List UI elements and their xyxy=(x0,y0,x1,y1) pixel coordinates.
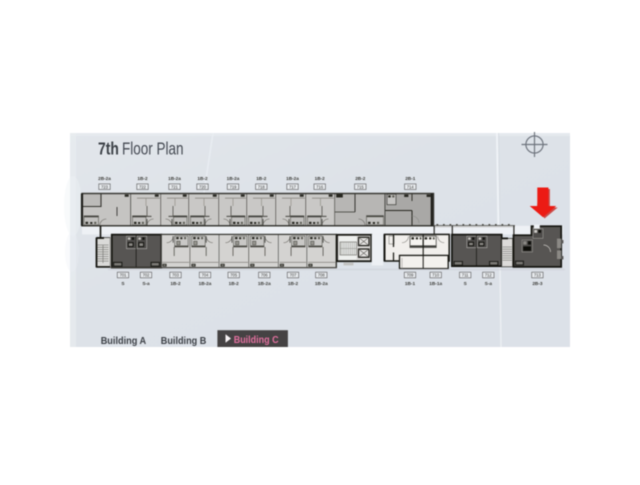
svg-text:723: 723 xyxy=(101,184,109,189)
svg-text:S: S xyxy=(464,281,467,286)
svg-text:722: 722 xyxy=(139,184,147,189)
svg-text:709: 709 xyxy=(407,273,415,278)
svg-text:2B-3: 2B-3 xyxy=(532,281,543,286)
svg-text:721: 721 xyxy=(171,184,179,189)
svg-text:712: 712 xyxy=(485,273,493,278)
svg-text:1B-2: 1B-2 xyxy=(315,176,326,181)
svg-text:716: 716 xyxy=(316,184,324,189)
svg-text:S-a: S-a xyxy=(485,281,493,286)
svg-text:2B-2a: 2B-2a xyxy=(98,176,111,181)
svg-text:1B-2a: 1B-2a xyxy=(168,176,181,181)
svg-text:1B-2: 1B-2 xyxy=(137,176,148,181)
svg-text:S-a: S-a xyxy=(142,281,150,286)
svg-text:2B-2: 2B-2 xyxy=(355,176,366,181)
svg-text:701: 701 xyxy=(120,273,128,278)
svg-text:720: 720 xyxy=(199,184,207,189)
svg-text:718: 718 xyxy=(258,184,266,189)
svg-text:1B-2a: 1B-2a xyxy=(227,176,240,181)
svg-text:706: 706 xyxy=(261,273,269,278)
svg-text:1B-2a: 1B-2a xyxy=(315,281,328,286)
svg-text:1B-1: 1B-1 xyxy=(405,281,416,286)
svg-text:Building B: Building B xyxy=(161,335,207,347)
svg-text:702: 702 xyxy=(143,273,151,278)
svg-text:7th: 7th xyxy=(98,138,119,158)
svg-text:Building C: Building C xyxy=(234,334,279,346)
svg-text:1B-2: 1B-2 xyxy=(170,281,181,286)
svg-text:711: 711 xyxy=(462,273,469,278)
svg-text:1B-1a: 1B-1a xyxy=(429,281,442,286)
svg-text:1B-2: 1B-2 xyxy=(197,176,208,181)
svg-text:703: 703 xyxy=(172,273,180,278)
svg-text:707: 707 xyxy=(290,273,298,278)
svg-text:1B-2a: 1B-2a xyxy=(258,281,271,286)
svg-text:1B-2: 1B-2 xyxy=(229,281,240,286)
svg-text:2B-1: 2B-1 xyxy=(405,176,416,181)
svg-text:710: 710 xyxy=(432,273,440,278)
svg-text:S: S xyxy=(121,281,124,286)
svg-text:1B-2: 1B-2 xyxy=(288,281,299,286)
svg-text:1B-2a: 1B-2a xyxy=(199,281,212,286)
svg-text:1B-2: 1B-2 xyxy=(256,176,267,181)
svg-text:704: 704 xyxy=(202,273,210,278)
svg-text:705: 705 xyxy=(230,273,238,278)
svg-text:Building A: Building A xyxy=(101,335,147,347)
svg-text:715: 715 xyxy=(357,184,365,189)
svg-text:708: 708 xyxy=(318,273,326,278)
svg-text:717: 717 xyxy=(289,184,297,189)
svg-text:713: 713 xyxy=(534,273,542,278)
svg-text:1B-2a: 1B-2a xyxy=(286,176,299,181)
svg-text:Floor Plan: Floor Plan xyxy=(122,138,184,158)
svg-text:714: 714 xyxy=(407,184,415,189)
svg-text:719: 719 xyxy=(230,184,238,189)
